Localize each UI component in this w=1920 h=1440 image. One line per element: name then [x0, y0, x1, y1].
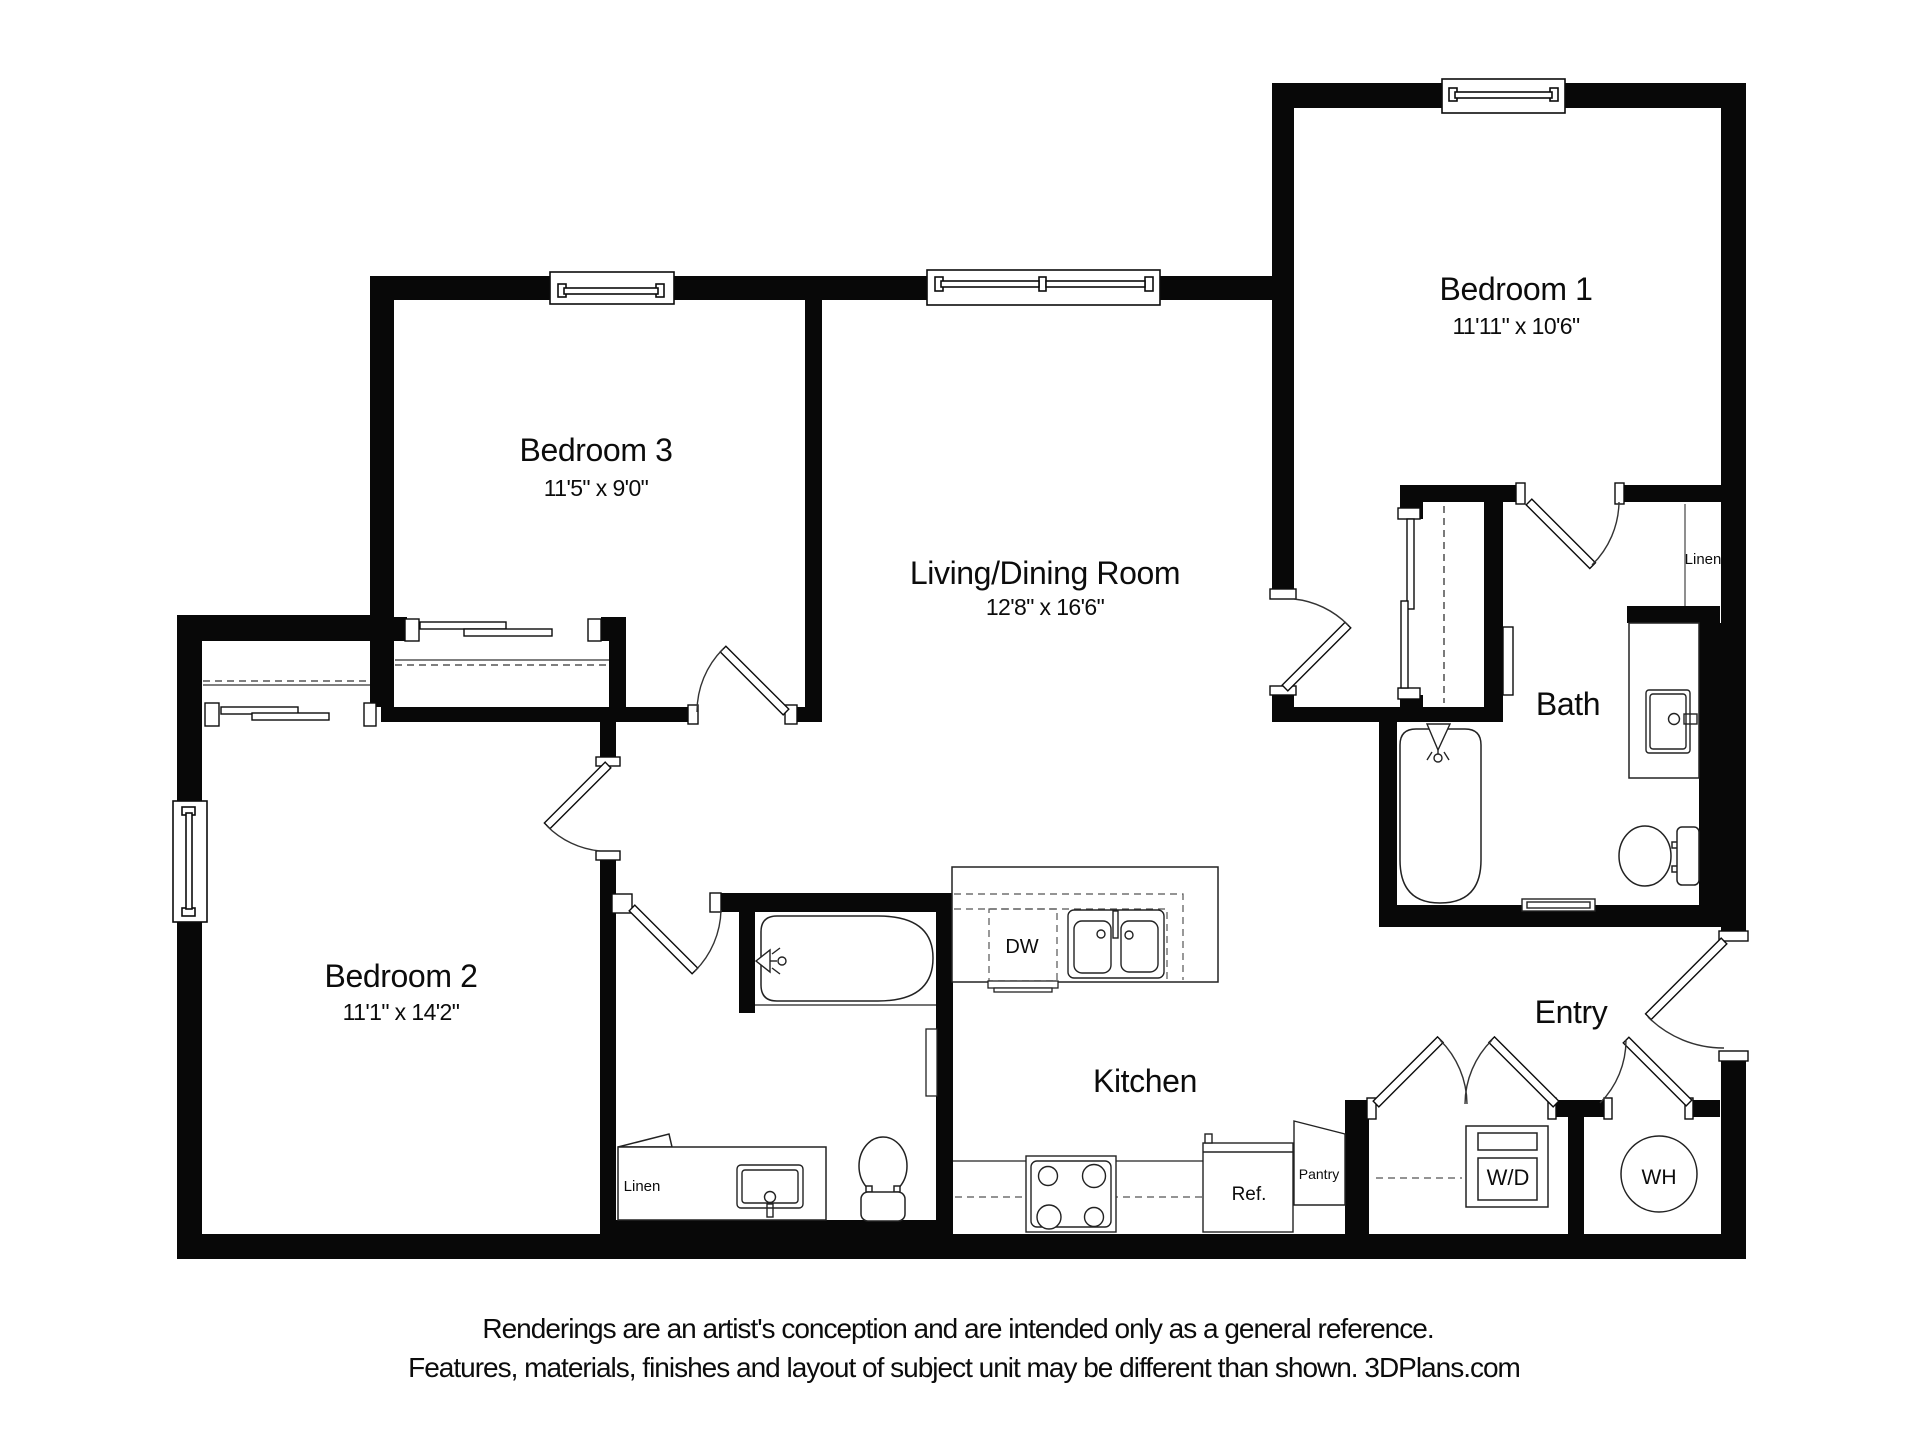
- svg-text:Bedroom 3: Bedroom 3: [520, 432, 673, 468]
- svg-text:W/D: W/D: [1487, 1165, 1530, 1190]
- svg-text:DW: DW: [1005, 936, 1038, 958]
- svg-text:Renderings are an artist's con: Renderings are an artist's conception an…: [482, 1313, 1433, 1344]
- svg-text:Linen: Linen: [624, 1178, 661, 1195]
- svg-text:Bedroom 1: Bedroom 1: [1440, 271, 1593, 307]
- svg-text:Bath: Bath: [1536, 686, 1600, 722]
- svg-text:Entry: Entry: [1535, 994, 1608, 1030]
- svg-text:11'11" x 10'6": 11'11" x 10'6": [1452, 313, 1580, 339]
- svg-text:Bedroom 2: Bedroom 2: [325, 958, 478, 994]
- svg-text:Features, materials, finishes: Features, materials, finishes and layout…: [408, 1352, 1520, 1383]
- svg-text:Linen: Linen: [1685, 551, 1722, 568]
- svg-text:11'5" x 9'0": 11'5" x 9'0": [544, 475, 649, 501]
- svg-text:Pantry: Pantry: [1299, 1166, 1339, 1182]
- svg-text:12'8" x 16'6": 12'8" x 16'6": [986, 594, 1105, 620]
- svg-text:WH: WH: [1642, 1166, 1677, 1189]
- svg-text:Living/Dining Room: Living/Dining Room: [910, 555, 1180, 591]
- svg-text:11'1" x 14'2": 11'1" x 14'2": [343, 999, 460, 1025]
- svg-text:Ref.: Ref.: [1232, 1184, 1267, 1205]
- svg-text:Kitchen: Kitchen: [1093, 1063, 1197, 1099]
